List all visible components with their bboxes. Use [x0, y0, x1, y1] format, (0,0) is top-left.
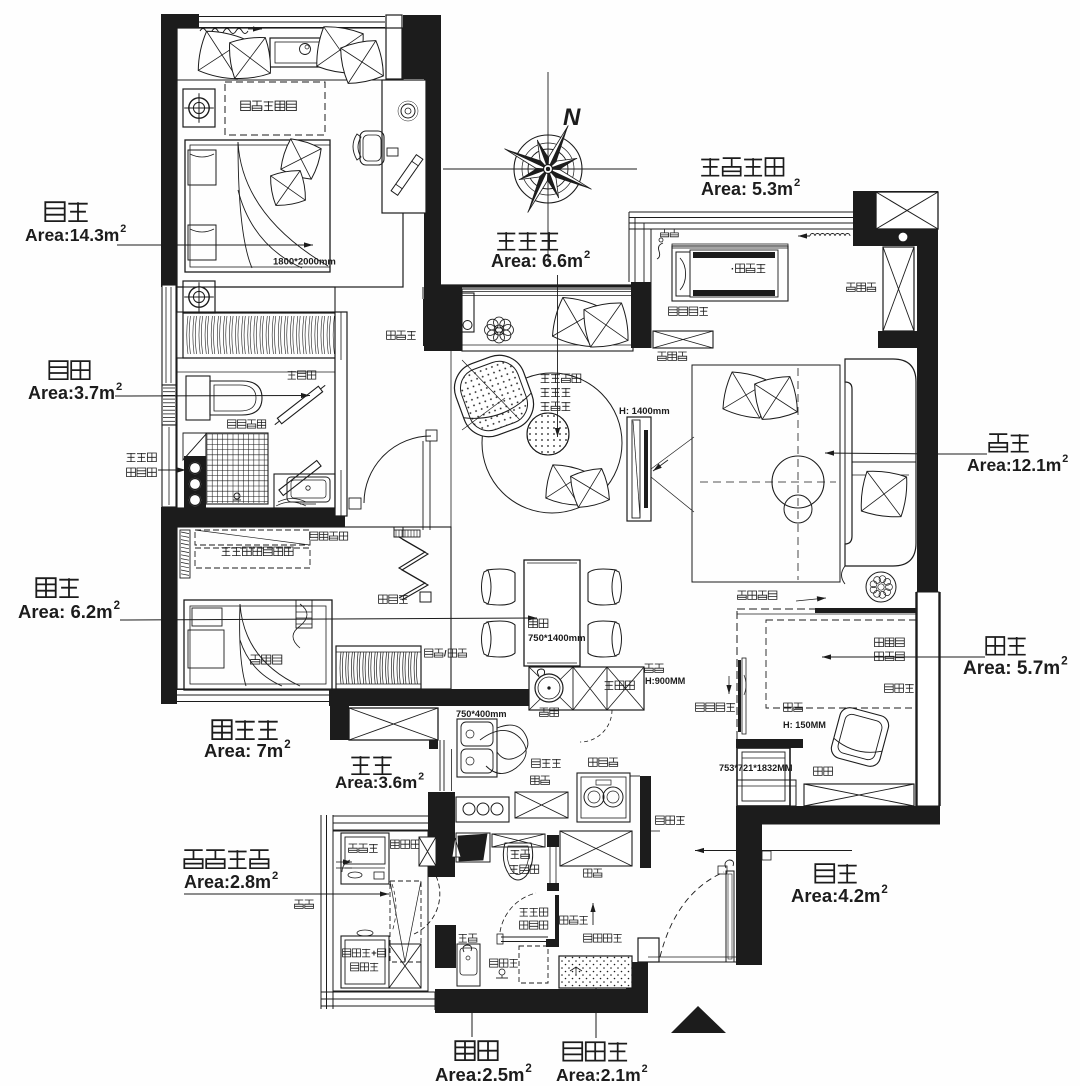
svg-text:/: /: [444, 648, 447, 659]
svg-text:2: 2: [284, 739, 290, 751]
svg-text:N: N: [563, 104, 581, 131]
svg-text:2: 2: [120, 223, 126, 235]
svg-text:2: 2: [881, 884, 887, 896]
svg-text:H: 150MM: H: 150MM: [783, 720, 826, 730]
svg-text:Area:2.8m: Area:2.8m: [184, 872, 271, 892]
svg-text:2: 2: [525, 1063, 531, 1075]
svg-text:H: 1400mm: H: 1400mm: [619, 406, 670, 417]
svg-text:Area: 5.7m: Area: 5.7m: [963, 658, 1060, 679]
svg-text:2: 2: [116, 381, 122, 393]
svg-text:1800*2000mm: 1800*2000mm: [273, 257, 336, 268]
svg-text:Area:2.5m: Area:2.5m: [435, 1064, 524, 1085]
svg-text:Area:14.3m: Area:14.3m: [25, 225, 119, 245]
svg-text:2: 2: [418, 771, 424, 783]
svg-text:Area:3.6m: Area:3.6m: [335, 773, 417, 792]
svg-text:2: 2: [1061, 654, 1068, 668]
svg-text:·: ·: [731, 264, 734, 275]
svg-text:H:900MM: H:900MM: [645, 676, 686, 686]
svg-text:Area: 7m: Area: 7m: [204, 740, 283, 761]
svg-text:+: +: [371, 948, 377, 958]
svg-text:2: 2: [1062, 453, 1068, 465]
svg-text:Area:12.1m: Area:12.1m: [967, 455, 1061, 475]
svg-text:Area:4.2m: Area:4.2m: [791, 885, 880, 906]
svg-text:2: 2: [794, 177, 800, 189]
svg-text:750*1400mm: 750*1400mm: [528, 633, 586, 644]
svg-text:Area: 6.2m: Area: 6.2m: [18, 601, 113, 622]
svg-text:2: 2: [584, 249, 590, 261]
svg-text:753*721*1832MM: 753*721*1832MM: [719, 763, 793, 773]
svg-text:750*400mm: 750*400mm: [456, 709, 507, 719]
svg-text:Area:2.1m: Area:2.1m: [556, 1065, 641, 1085]
svg-text:2: 2: [272, 870, 278, 882]
svg-text:Area: 6.6m: Area: 6.6m: [491, 251, 583, 271]
svg-text:Area: 5.3m: Area: 5.3m: [701, 179, 793, 199]
svg-text:2: 2: [114, 600, 120, 612]
svg-text:Area:3.7m: Area:3.7m: [28, 383, 115, 403]
svg-text:2: 2: [642, 1063, 648, 1075]
